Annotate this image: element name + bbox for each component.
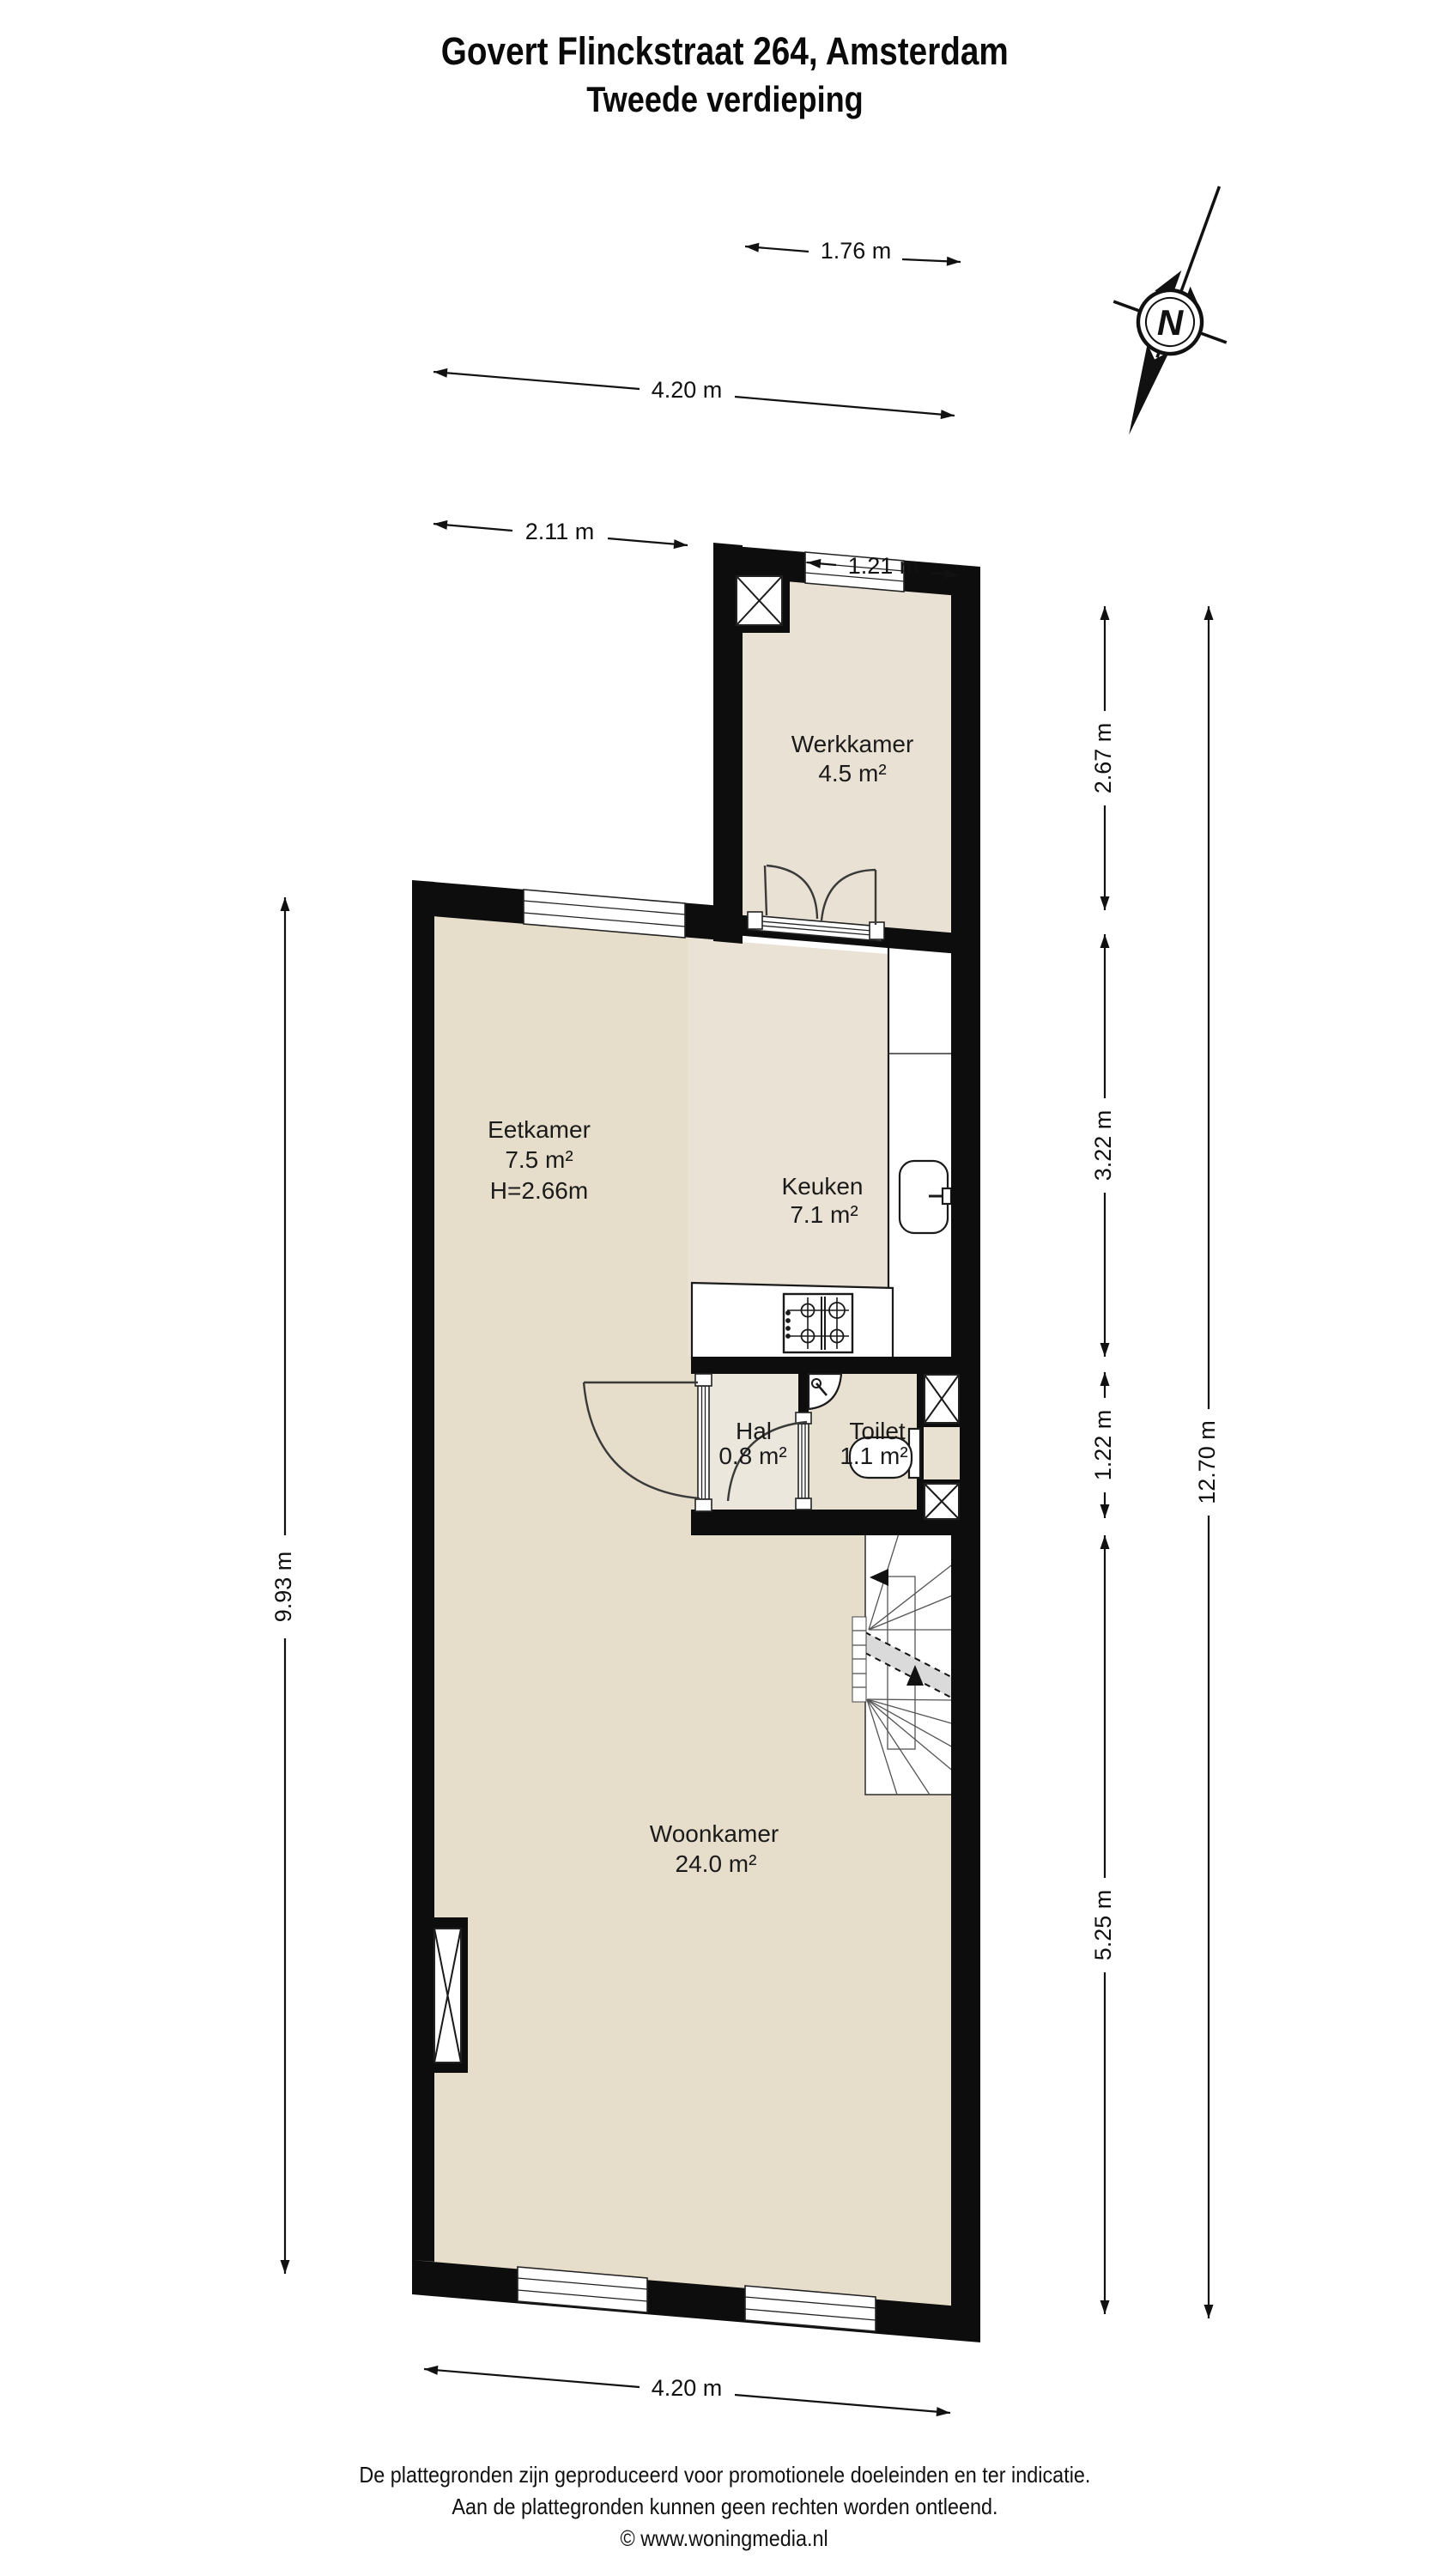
label-eetkamer-height: H=2.66m: [490, 1177, 588, 1204]
dim-right-hal: 1.22 m: [1090, 1372, 1116, 1518]
hal-left-cap-bottom: [695, 1499, 712, 1511]
footer-line-3: © www.woningmedia.nl: [621, 2524, 828, 2552]
staircase: [852, 1534, 955, 1795]
door-post-right: [870, 922, 884, 939]
compass-south-needle: [1116, 344, 1169, 439]
dim-label: 1.21 m: [848, 553, 919, 579]
dim-label: 3.22 m: [1090, 1110, 1116, 1182]
hal-left-glass-panel: [698, 1386, 709, 1499]
footer-line-1: De plattegronden zijn geproduceerd voor …: [359, 2461, 1090, 2488]
dim-label: 5.25 m: [1090, 1890, 1116, 1961]
counter-right: [888, 945, 955, 1358]
dim-right-keuken: 3.22 m: [1090, 934, 1116, 1357]
label-werkkamer: Werkkamer: [791, 731, 914, 757]
door-post-left: [748, 912, 762, 929]
dim-label: 2.11 m: [525, 519, 595, 544]
footer-disclaimer: De plattegronden zijn geproduceerd voor …: [0, 2461, 1449, 2556]
label-keuken-area: 7.1 m²: [790, 1201, 858, 1228]
hal-toilet-panel: [798, 1424, 809, 1498]
dim-label: 4.20 m: [652, 2375, 723, 2401]
dim-top-werkkamer: 1.76 m: [745, 238, 961, 266]
dim-right-werkkamer: 2.67 m: [1090, 606, 1116, 910]
dim-right-woonkamer: 5.25 m: [1090, 1535, 1116, 2314]
label-toilet: Toilet: [849, 1418, 906, 1444]
label-keuken: Keuken: [782, 1173, 864, 1200]
label-toilet-area: 1.1 m²: [840, 1443, 907, 1469]
dim-top-width: 4.20 m: [433, 368, 955, 419]
label-woonkamer: Woonkamer: [650, 1820, 779, 1847]
dim-label: 9.93 m: [270, 1552, 296, 1623]
label-werkkamer-area: 4.5 m²: [818, 760, 886, 787]
compass: N: [1072, 166, 1276, 455]
kitchen-faucet-base: [943, 1188, 951, 1204]
hal-left-cap-top: [695, 1374, 712, 1386]
footer-line-2: Aan de plattegronden kunnen geen rechten…: [452, 2493, 997, 2520]
label-hal: Hal: [736, 1418, 772, 1444]
label-hal-area: 0.8 m²: [718, 1443, 786, 1469]
shaft-gap: [924, 1427, 960, 1479]
label-woonkamer-area: 24.0 m²: [676, 1850, 757, 1877]
floorplan-canvas: N 1.76 m 4.20 m 2.11 m 1.21 m 4.20 m 2.6…: [0, 0, 1449, 2576]
dim-bottom-width: 4.20 m: [424, 2366, 950, 2416]
dim-label: 4.20 m: [652, 377, 723, 403]
dim-label: 1.22 m: [1090, 1410, 1116, 1481]
label-eetkamer-area: 7.5 m²: [505, 1146, 573, 1173]
hal-toilet-cap-bottom: [796, 1498, 811, 1510]
stair-balustrade-comb: [852, 1617, 866, 1702]
dim-top-eetkamer: 2.11 m: [433, 519, 688, 549]
floorplan-page: Govert Flinckstraat 264, Amsterdam Tweed…: [0, 0, 1449, 2576]
label-eetkamer: Eetkamer: [488, 1116, 591, 1143]
compass-north-label: N: [1157, 302, 1185, 343]
dim-label: 12.70 m: [1194, 1420, 1220, 1504]
dim-right-overall: 12.70 m: [1194, 606, 1220, 2318]
dim-label: 2.67 m: [1090, 723, 1116, 794]
dim-left-overall: 9.93 m: [270, 897, 296, 2274]
dim-label: 1.76 m: [821, 238, 892, 264]
